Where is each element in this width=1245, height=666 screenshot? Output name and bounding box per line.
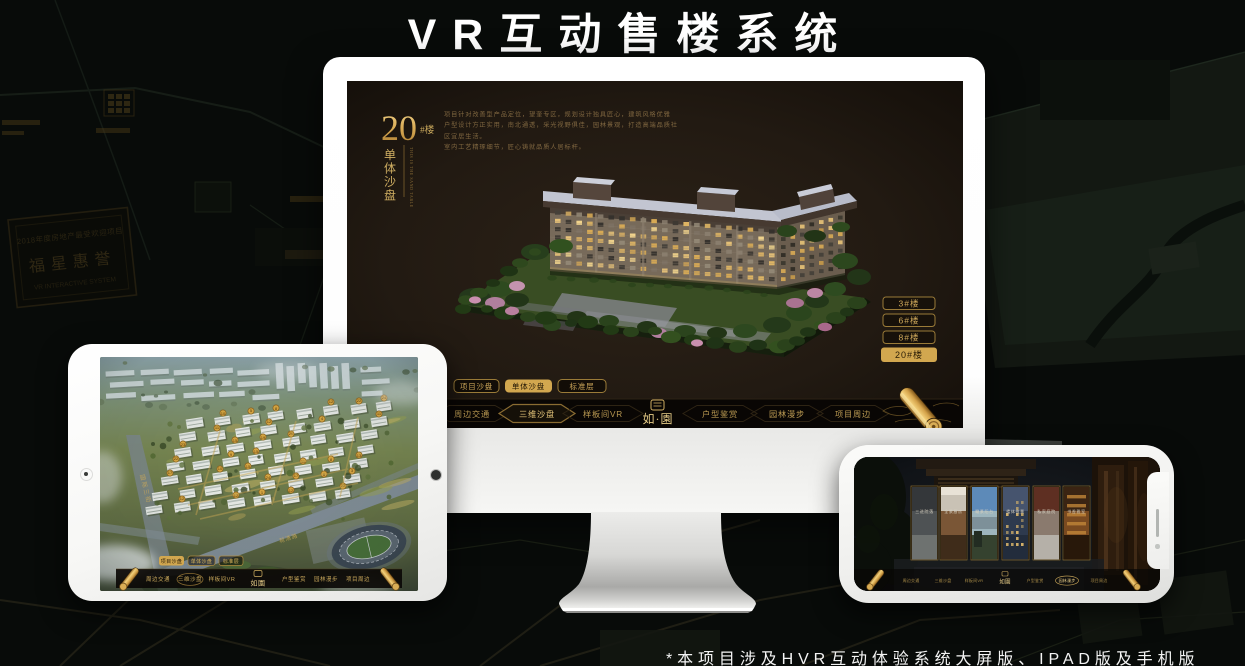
svg-text:如園: 如園 [251, 579, 266, 588]
svg-text:户型设计方正实用，南北通透，采光视野俱佳，园林景观，打造高端: 户型设计方正实用，南北通透，采光视野俱佳，园林景观，打造高端品质社 [444, 121, 678, 129]
svg-text:周边交通: 周边交通 [454, 409, 490, 419]
svg-text:样板间VR: 样板间VR [965, 577, 984, 583]
svg-text:全景厨房: 全景厨房 [944, 508, 962, 514]
svg-text:3#楼: 3#楼 [899, 299, 920, 309]
svg-text:户型鉴赏: 户型鉴赏 [1027, 577, 1044, 583]
svg-text:私家庭院: 私家庭院 [1037, 508, 1055, 514]
svg-text:THIS IS THE SAND TABLE: THIS IS THE SAND TABLE [409, 147, 414, 208]
svg-text:周边交通: 周边交通 [146, 575, 170, 583]
svg-text:三维沙盘: 三维沙盘 [519, 409, 555, 419]
svg-text:20: 20 [381, 108, 417, 148]
svg-text:园林漫步: 园林漫步 [1059, 577, 1076, 583]
svg-text:三维沙盘: 三维沙盘 [178, 575, 202, 583]
svg-text:样板间VR: 样板间VR [583, 409, 623, 419]
svg-text:20#楼: 20#楼 [895, 349, 923, 360]
svg-text:瞰景阳台: 瞰景阳台 [975, 508, 993, 514]
svg-text:标准层: 标准层 [570, 381, 595, 391]
svg-text:楼体夜景: 楼体夜景 [1006, 508, 1024, 514]
svg-text:周边交通: 周边交通 [903, 577, 920, 583]
svg-text:园林漫步: 园林漫步 [769, 409, 805, 419]
svg-text:户型鉴赏: 户型鉴赏 [282, 575, 306, 583]
svg-text:三进院落: 三进院落 [915, 508, 933, 514]
svg-text:项目针对改善型产品定位，望奎专区，规划设计独具匠心，建筑风格: 项目针对改善型产品定位，望奎专区，规划设计独具匠心，建筑风格优雅 [444, 111, 671, 119]
svg-text:室内工艺精琢细节，匠心铸就品质人居标杆。: 室内工艺精琢细节，匠心铸就品质人居标杆。 [444, 143, 586, 151]
svg-text:三维沙盘: 三维沙盘 [935, 577, 952, 583]
svg-text:园林漫步: 园林漫步 [314, 575, 338, 583]
svg-text:区宜居生活。: 区宜居生活。 [444, 133, 487, 141]
svg-text:单体沙盘: 单体沙盘 [384, 148, 398, 203]
svg-text:样板间VR: 样板间VR [209, 575, 236, 583]
svg-text:书香雅室: 书香雅室 [1067, 508, 1085, 514]
svg-text:项目周边: 项目周边 [1091, 577, 1108, 583]
svg-text:#楼: #楼 [420, 124, 435, 136]
svg-text:户型鉴赏: 户型鉴赏 [702, 409, 738, 419]
svg-text:项目周边: 项目周边 [346, 575, 370, 583]
svg-text:单体沙盘: 单体沙盘 [191, 558, 213, 565]
svg-text:6#楼: 6#楼 [899, 316, 920, 326]
svg-text:如·園: 如·園 [643, 411, 674, 426]
svg-text:8#楼: 8#楼 [899, 333, 920, 343]
svg-text:项目周边: 项目周边 [835, 409, 871, 419]
svg-text:项目沙盘: 项目沙盘 [161, 558, 183, 565]
svg-text:项目沙盘: 项目沙盘 [460, 381, 493, 391]
svg-text:标准层: 标准层 [223, 558, 239, 565]
svg-text:如園: 如園 [999, 578, 1011, 586]
svg-text:单体沙盘: 单体沙盘 [512, 381, 545, 391]
